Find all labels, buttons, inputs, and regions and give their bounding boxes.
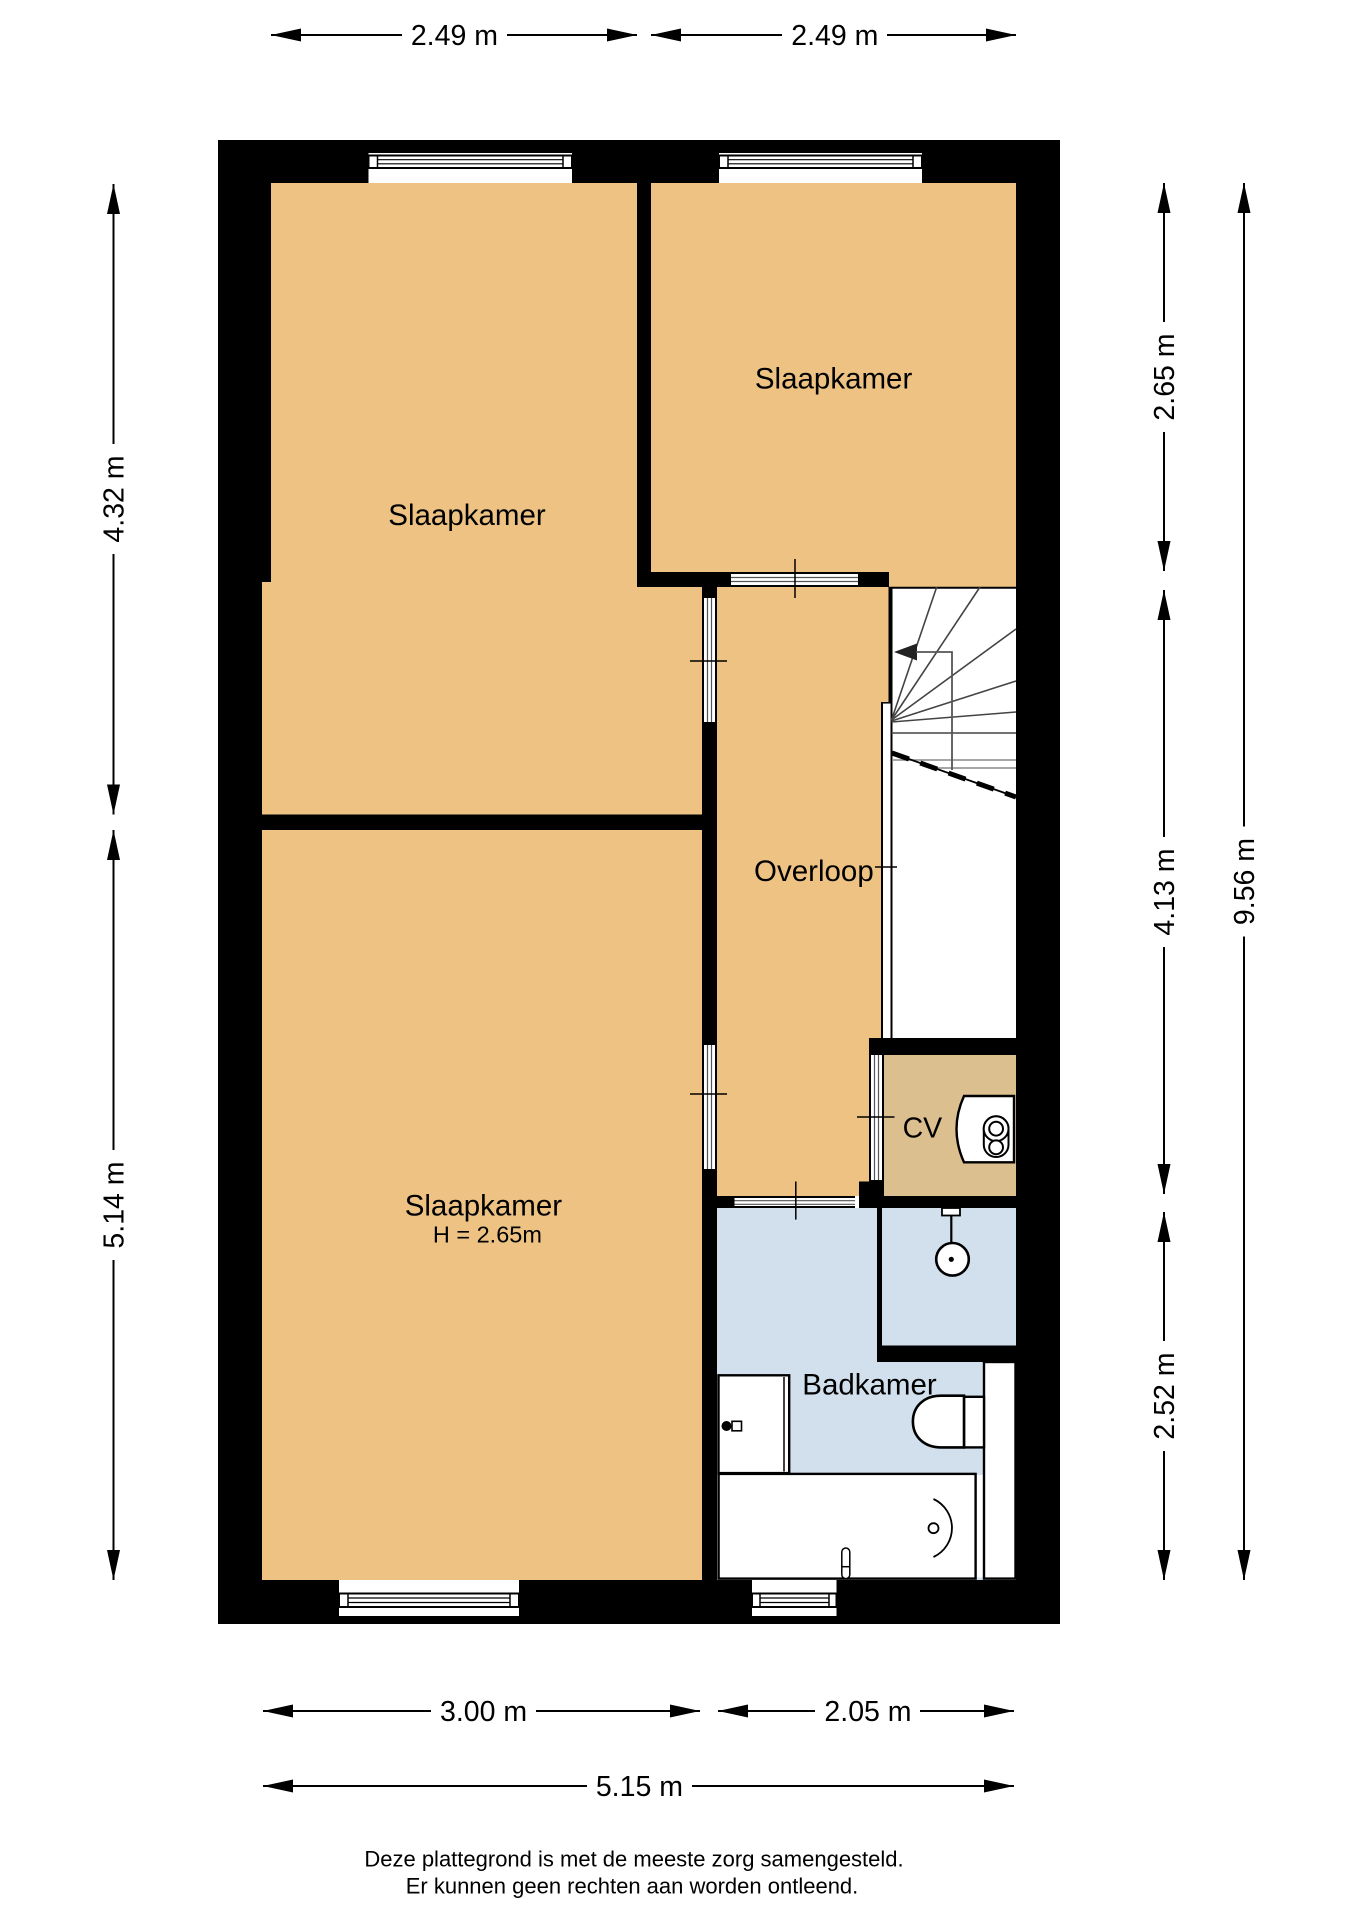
svg-text:2.05 m: 2.05 m bbox=[824, 1696, 911, 1728]
svg-text:Slaapkamer: Slaapkamer bbox=[405, 1189, 563, 1222]
svg-text:2.52 m: 2.52 m bbox=[1149, 1352, 1181, 1439]
svg-text:3.00 m: 3.00 m bbox=[440, 1696, 527, 1728]
svg-text:5.14 m: 5.14 m bbox=[99, 1161, 131, 1248]
svg-text:H = 2.65m: H = 2.65m bbox=[433, 1222, 542, 1248]
svg-text:2.65 m: 2.65 m bbox=[1149, 333, 1181, 420]
svg-text:2.49 m: 2.49 m bbox=[411, 20, 498, 52]
svg-text:Slaapkamer: Slaapkamer bbox=[755, 363, 913, 396]
svg-text:Er kunnen geen rechten aan wor: Er kunnen geen rechten aan worden ontlee… bbox=[406, 1874, 859, 1899]
svg-text:Deze plattegrond is met de mee: Deze plattegrond is met de meeste zorg s… bbox=[364, 1847, 903, 1872]
svg-text:9.56 m: 9.56 m bbox=[1229, 838, 1261, 925]
svg-text:CV: CV bbox=[903, 1113, 943, 1145]
svg-text:Slaapkamer: Slaapkamer bbox=[388, 499, 546, 532]
svg-text:4.32 m: 4.32 m bbox=[99, 455, 131, 542]
svg-text:2.49 m: 2.49 m bbox=[791, 20, 878, 52]
svg-text:Overloop: Overloop bbox=[754, 855, 874, 888]
svg-text:5.15 m: 5.15 m bbox=[596, 1771, 683, 1803]
svg-text:4.13 m: 4.13 m bbox=[1149, 848, 1181, 935]
svg-text:Badkamer: Badkamer bbox=[802, 1368, 937, 1401]
